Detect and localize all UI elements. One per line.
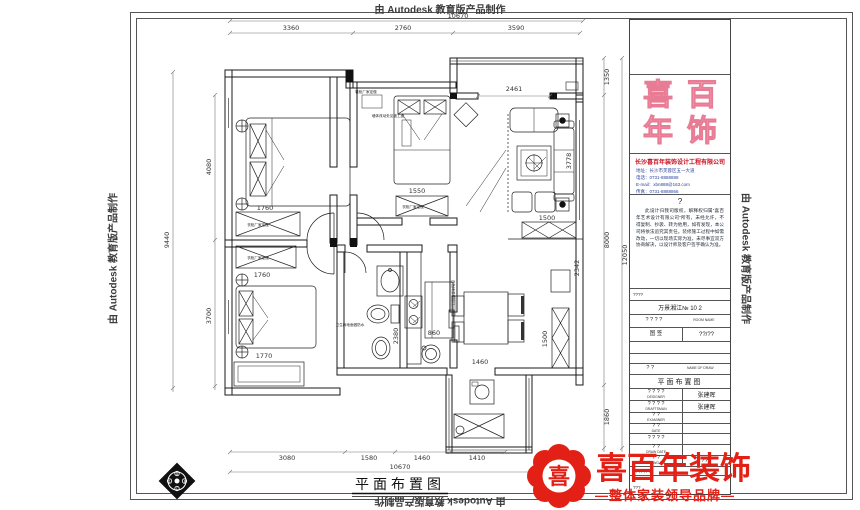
note-wall-change: 墙体改动处见施工图 [372,113,405,118]
company-phone: 电话：0731-8888888 [636,175,724,182]
compass-w: D [168,480,171,484]
brand-name: 喜百年装饰 [596,443,751,488]
dim-bed3-width: 1770 [256,352,273,360]
table-r1: ???? [630,292,643,297]
brand-tagline: —整体家装领导品牌— [595,485,735,504]
note-wardrobe-2: 衣柜厂家定做 [402,204,424,209]
notice-box: ? 此设计归我司版权，解释权归属“喜百年艺术设计有限公司”所有，未经允许，不得复… [630,194,730,288]
designer-value: 张建晖 [682,389,730,400]
dim-living-depth: 3778 [565,153,573,170]
dim-right-a: 1350 [603,69,611,86]
floorplan-drawing: 10670 3360 2760 3590 9440 4080 3700 1350… [0,0,860,510]
watermark-right: 由 Autodesk 教育版产品制作 [740,184,755,334]
room-label-en: ROOM NAME [693,319,714,323]
title-block: 喜 百 年 饰 长沙喜百年装饰设计工程有限公司 地址：长沙市芙蓉区五一大道 电话… [629,19,731,495]
sheet-label: 图 签 [650,331,663,337]
note-wardrobe-3: 衣柜厂家定做 [247,255,269,260]
note-wardrobe-1: 衣柜厂家定做 [247,222,269,227]
drawname-label-zh: ? ? [646,366,654,372]
dim-bottom-d: 1410 [469,454,486,462]
notice-body: 此设计归我司版权，解释权归属“喜百年艺术设计有限公司”所有，未经允许，不得复制、… [636,208,724,249]
dim-bottom-c: 1460 [414,454,431,462]
dim-wardrobe-bed3: 1760 [254,271,271,279]
dimension-texts: 10670 3360 2760 3590 9440 4080 3700 1350… [163,12,629,471]
room-label-zh: ? ? ? ? [645,318,662,324]
title-block-empty-box [630,20,730,74]
watermark-bottom: 由 Autodesk 教育版产品制作 [340,495,540,510]
dim-left-b: 3700 [205,308,213,325]
balcony-fixtures [454,380,504,438]
company-info-box: 长沙喜百年装饰设计工程有限公司 地址：长沙市芙蓉区五一大道 电话：0731-88… [630,153,730,194]
drawing-title-text: 平面布置图 [355,477,445,493]
dim-left-a: 4080 [205,159,213,176]
interior-walls [225,77,583,368]
table-row-top: ???? [630,288,730,300]
note-sliding-door: 白色烤漆推拉门 [451,280,456,306]
examiner-value [682,413,730,423]
watermark-left: 由 Autodesk 教育版产品制作 [105,184,120,334]
logo-char-2: 百 [680,78,724,114]
company-email: E-mail：xbn888@163.com [636,182,724,189]
sheet-row: 图 签 ??/?? [630,327,730,341]
dim-left-total: 9440 [163,232,171,249]
dim-top-c: 3590 [508,24,525,32]
date-row: ? ?DATE [630,423,730,433]
watermark-top: 由 Autodesk 教育版产品制作 [340,1,540,16]
bedroom3-furniture [234,246,316,386]
project-name: 万景湘江№ 10 2 [658,303,702,312]
draftsman-value: 张建晖 [682,401,730,412]
dim-cabinet: 1500 [541,331,549,348]
dim-bottom-a: 3080 [279,454,296,462]
examiner-row: ? ?EXAMINER [630,412,730,423]
dim-bottom-b: 1580 [361,454,378,462]
dim-right-total: 12050 [621,245,629,266]
master-bedroom-furniture [236,118,350,236]
drawname-label-row: ? ? NAME OF DRAW [630,363,730,374]
dim-right-c: 1860 [603,409,611,426]
dim-wardrobe-master: 1760 [257,204,274,212]
company-name: 长沙喜百年装饰设计工程有限公司 [632,157,728,166]
draftsman-row: ? ? ? ?DRAFTSMAN 张建晖 [630,400,730,412]
draftsman-label-en: DRAFTSMAN [630,408,682,412]
drawing-title: 平面布置图 [352,477,448,497]
note-waterproof: 卫生间地面做防水 [336,322,365,327]
date-value [682,424,730,433]
dim-bottom-total: 10670 [390,463,411,471]
drawname-row: 平面布置图 [630,374,730,388]
draw-name: 平面布置图 [658,377,703,387]
logo-char-4: 饰 [680,114,724,150]
dining-set [452,292,524,344]
dim-opening: 2461 [506,85,523,93]
empty-row-2 [630,353,730,363]
cad-sheet: 10670 3360 2760 3590 9440 4080 3700 1350… [0,0,860,510]
note-shoe-cabinet: 鞋柜厂家定做 [355,89,377,94]
door-swings [307,82,578,274]
logo-char-3: 年 [636,114,680,150]
dim-wardrobe-bed2: 1550 [409,187,426,195]
notice-mark: ? [630,197,730,206]
project-row: 万景湘江№ 10 2 [630,300,730,314]
kitchen-fixtures [405,252,459,364]
dim-stove: 860 [428,329,440,337]
dim-top-b: 2760 [395,24,412,32]
sheet-value: ??/?? [682,328,730,341]
dim-sofa-row: 1500 [539,214,556,222]
dim-right-b: 8000 [603,232,611,249]
room-row: ? ? ? ? ROOM NAME [630,314,730,327]
designer-row: ? ? ? ?DESIGNER 张建晖 [630,388,730,400]
brand-logo: 喜 喜百年装饰 —整体家装领导品牌— [524,441,756,510]
logo-char-1: 喜 [636,78,680,114]
brand-seal-char: 喜 [548,464,570,490]
designer-label-en: DESIGNER [630,396,682,400]
company-logo-box: 喜 百 年 饰 [630,74,730,153]
dim-balcony-top: 1460 [472,358,489,366]
company-address: 地址：长沙市芙蓉区五一大道 [636,168,724,175]
dim-column: 2342 [573,260,581,277]
drawname-label-en: NAME OF DRAW [687,367,714,371]
dim-bath: 2380 [392,328,400,345]
side-cabinet [551,270,570,368]
empty-row-1 [630,341,730,353]
dim-top-a: 3360 [283,24,300,32]
wall-columns [330,70,557,247]
brand-seal-icon: 喜 [524,441,594,510]
